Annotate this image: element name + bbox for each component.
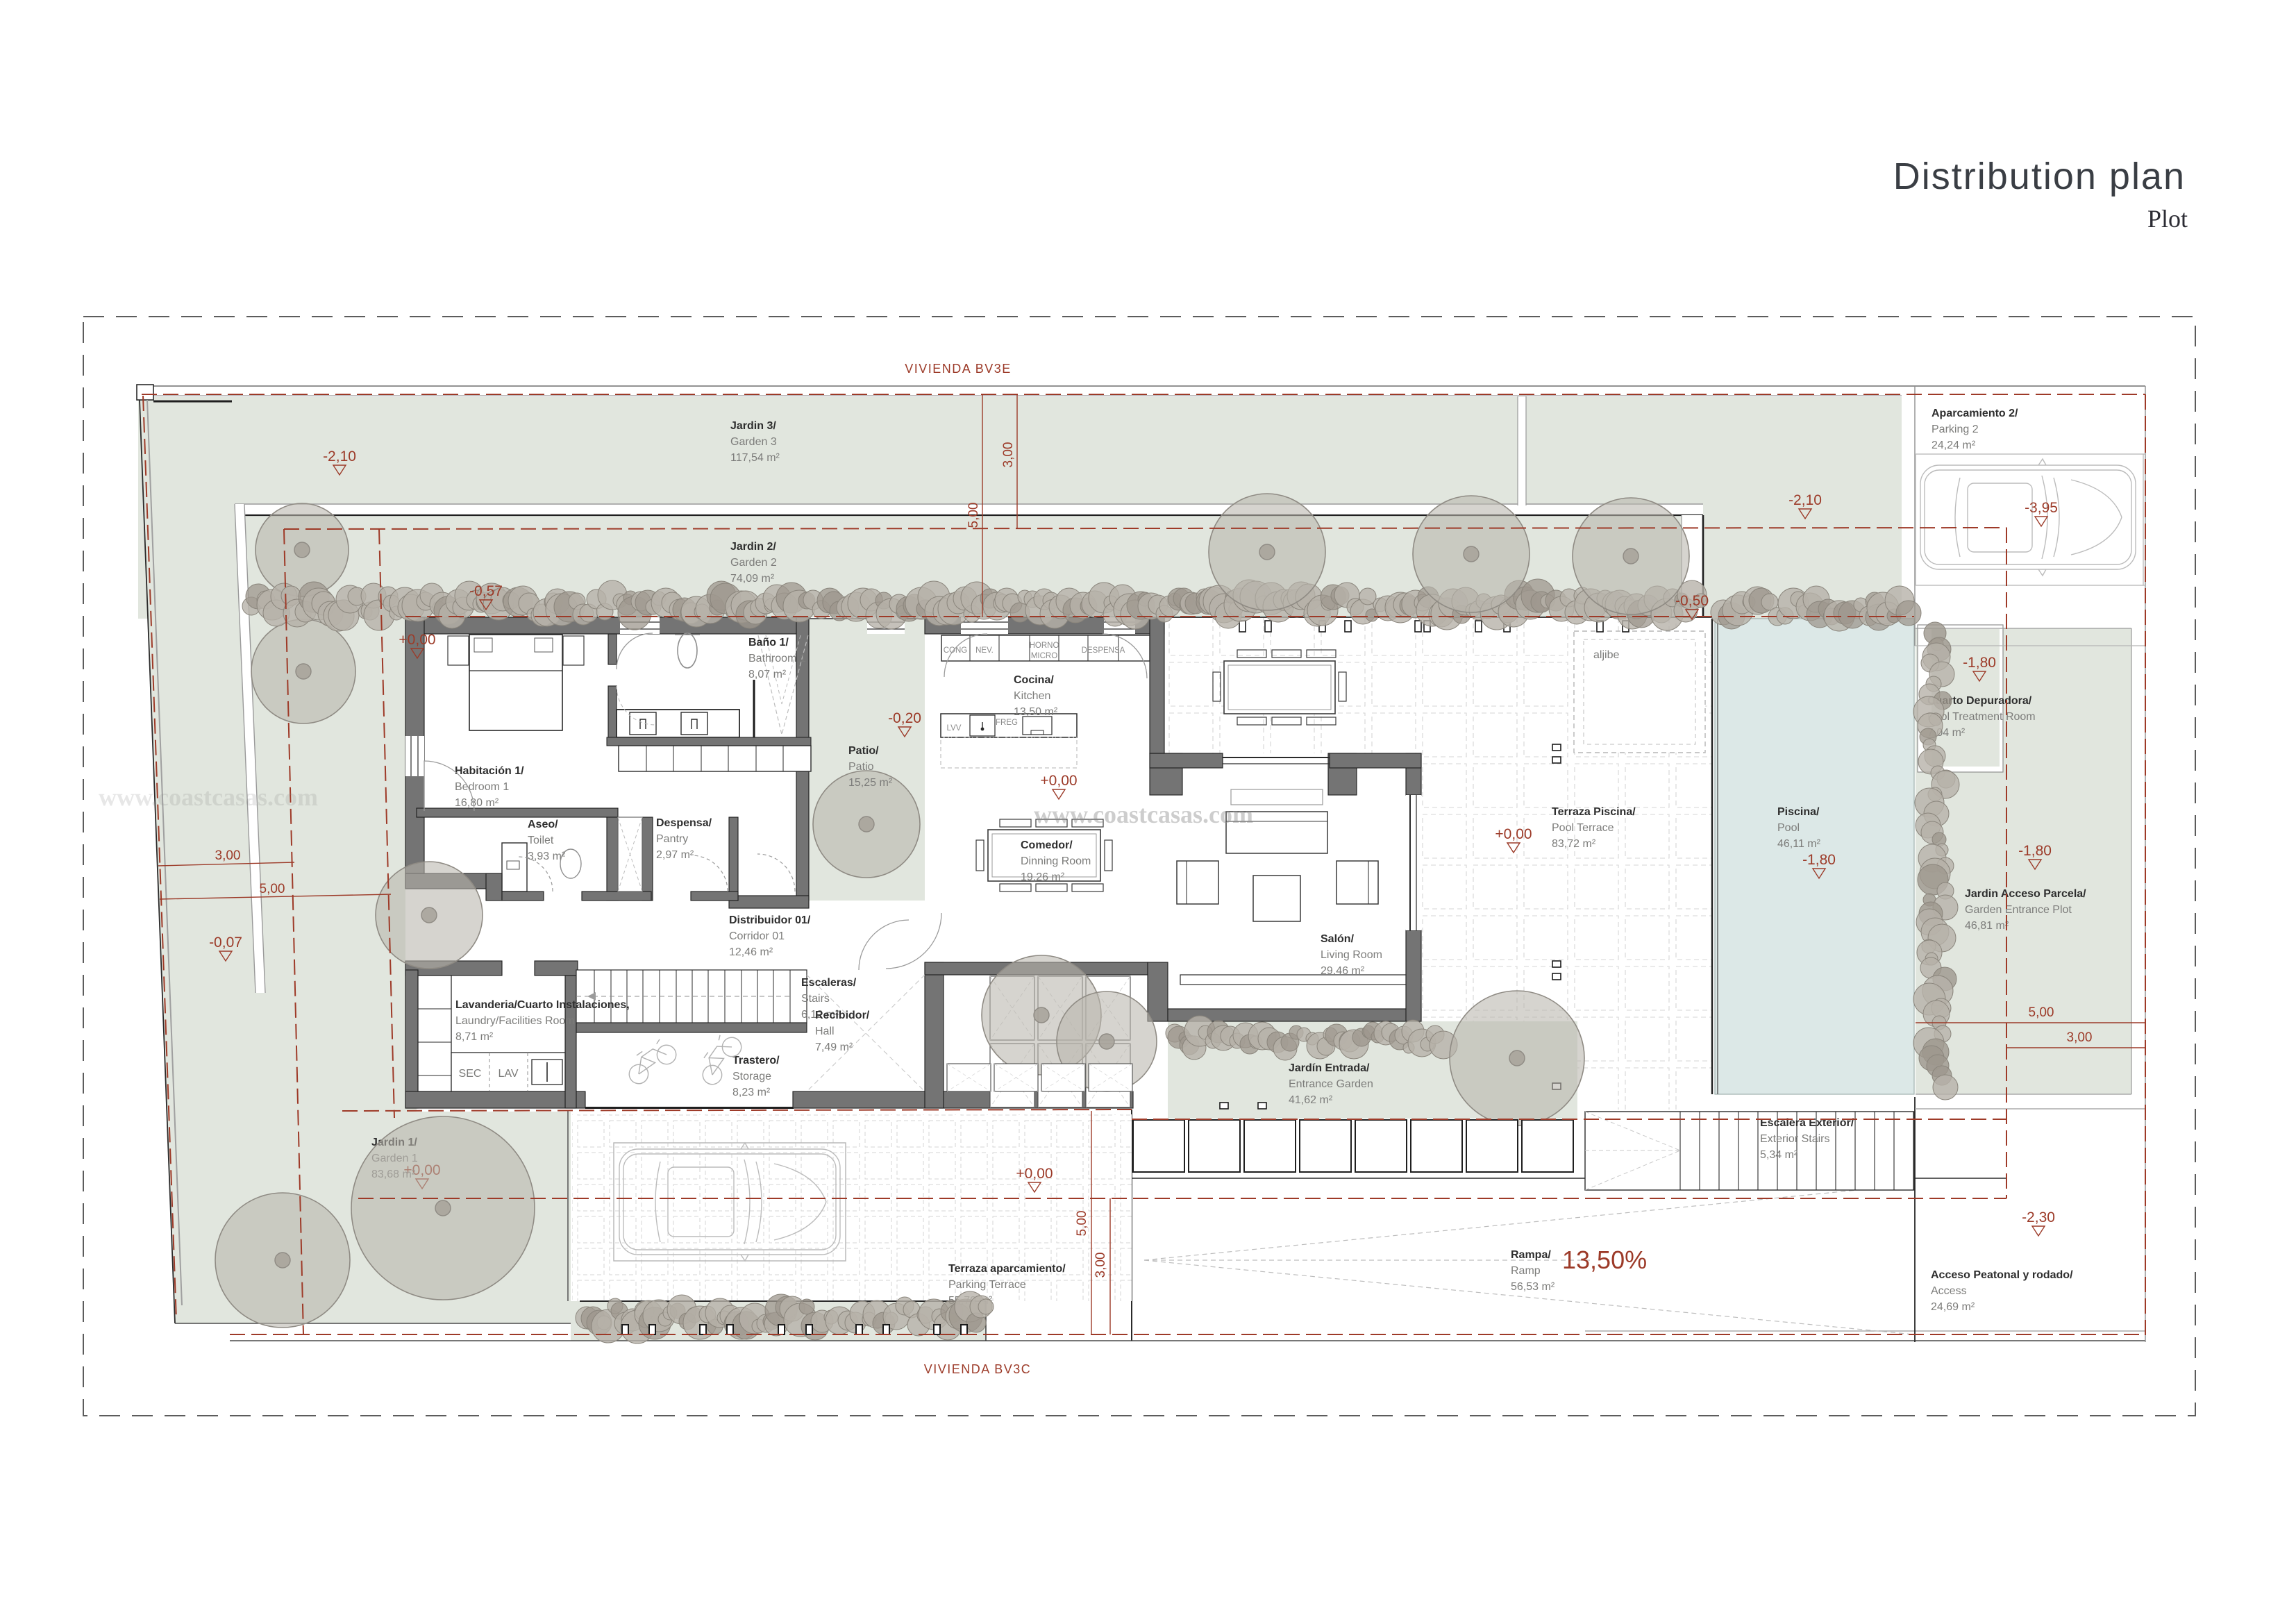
svg-text:Patio/: Patio/ — [848, 745, 879, 757]
svg-text:8,07 m²: 8,07 m² — [748, 669, 787, 680]
svg-text:-0,50: -0,50 — [1675, 593, 1709, 609]
svg-text:12,46 m²: 12,46 m² — [729, 946, 773, 958]
svg-text:Baño 1/: Baño 1/ — [748, 637, 789, 648]
svg-text:-0,07: -0,07 — [209, 935, 242, 951]
svg-text:46,11 m²: 46,11 m² — [1777, 838, 1821, 850]
svg-text:Pool: Pool — [1777, 822, 1800, 834]
svg-text:Lavanderia/Cuarto Instalacione: Lavanderia/Cuarto Instalaciones, — [455, 999, 630, 1011]
svg-text:56,53 m²: 56,53 m² — [1511, 1281, 1555, 1293]
svg-text:+0,00: +0,00 — [1495, 826, 1532, 842]
svg-text:5,00: 5,00 — [2029, 1005, 2054, 1020]
svg-text:www.coastcasas.com: www.coastcasas.com — [99, 783, 318, 811]
svg-text:Despensa/: Despensa/ — [656, 817, 712, 829]
svg-text:8,23 m²: 8,23 m² — [732, 1087, 771, 1098]
svg-text:Garden 3: Garden 3 — [730, 436, 777, 448]
svg-text:www.coastcasas.com: www.coastcasas.com — [1034, 801, 1253, 828]
svg-text:3,00: 3,00 — [1001, 442, 1016, 468]
svg-text:-0,57: -0,57 — [469, 583, 503, 599]
svg-text:3,00: 3,00 — [215, 848, 241, 863]
svg-text:5,00: 5,00 — [966, 503, 981, 528]
svg-text:41,62 m²: 41,62 m² — [1289, 1094, 1333, 1106]
svg-text:Jardin 3/: Jardin 3/ — [730, 420, 776, 432]
svg-text:Entrance Garden: Entrance Garden — [1289, 1078, 1373, 1090]
svg-text:74,09 m²: 74,09 m² — [730, 573, 775, 585]
svg-text:Comedor/: Comedor/ — [1021, 839, 1073, 851]
svg-text:15,25 m²: 15,25 m² — [848, 777, 893, 789]
svg-text:DESPENSA: DESPENSA — [1082, 646, 1125, 655]
svg-text:Jardin 2/: Jardin 2/ — [730, 541, 776, 553]
svg-text:Patio: Patio — [848, 761, 874, 773]
svg-text:Dinning Room: Dinning Room — [1021, 855, 1091, 867]
svg-text:-2,10: -2,10 — [323, 449, 356, 464]
svg-text:Rampa/: Rampa/ — [1511, 1249, 1551, 1261]
svg-text:Bathroom 1: Bathroom 1 — [748, 653, 806, 664]
svg-text:Garden Entrance Plot: Garden Entrance Plot — [1965, 904, 2072, 916]
svg-text:5,00: 5,00 — [260, 882, 285, 896]
svg-text:Aparcamiento 2/: Aparcamiento 2/ — [1932, 408, 2018, 419]
svg-text:LAV: LAV — [498, 1068, 518, 1080]
svg-text:NEV.: NEV. — [975, 646, 994, 655]
svg-text:-0,20: -0,20 — [888, 710, 921, 726]
svg-text:Ramp: Ramp — [1511, 1265, 1541, 1277]
svg-text:Pool Terrace: Pool Terrace — [1552, 822, 1614, 834]
svg-text:MICRO: MICRO — [1031, 652, 1057, 660]
svg-text:aljibe: aljibe — [1593, 649, 1619, 661]
svg-text:16,80 m²: 16,80 m² — [455, 797, 499, 809]
svg-text:VIVIENDA BV3C: VIVIENDA BV3C — [924, 1362, 1032, 1376]
svg-text:Distribution plan: Distribution plan — [1893, 156, 2186, 197]
svg-text:Toilet: Toilet — [528, 835, 554, 846]
svg-text:Terraza aparcamiento/: Terraza aparcamiento/ — [948, 1263, 1066, 1275]
svg-text:Acceso Peatonal y rodado/: Acceso Peatonal y rodado/ — [1931, 1269, 2073, 1281]
svg-text:46,81 m²: 46,81 m² — [1965, 920, 2009, 932]
svg-text:Habitación 1/: Habitación 1/ — [455, 765, 524, 777]
svg-text:24,24 m²: 24,24 m² — [1932, 440, 1976, 451]
svg-text:Hall: Hall — [815, 1026, 835, 1037]
svg-text:3,00: 3,00 — [2067, 1030, 2093, 1045]
svg-text:Access: Access — [1931, 1285, 1967, 1297]
svg-text:8,71 m²: 8,71 m² — [455, 1031, 494, 1043]
svg-text:-1,80: -1,80 — [1802, 852, 1836, 868]
svg-text:-2,30: -2,30 — [2022, 1209, 2055, 1225]
svg-text:Pantry: Pantry — [656, 833, 688, 845]
svg-text:Recibidor/: Recibidor/ — [815, 1010, 870, 1021]
svg-text:Kitchen: Kitchen — [1014, 690, 1050, 702]
svg-text:-1,80: -1,80 — [2018, 843, 2052, 859]
svg-text:VIVIENDA BV3E: VIVIENDA BV3E — [905, 362, 1012, 376]
svg-text:Cocina/: Cocina/ — [1014, 674, 1054, 686]
svg-text:2,97 m²: 2,97 m² — [656, 849, 694, 861]
svg-text:Terraza Piscina/: Terraza Piscina/ — [1552, 806, 1636, 818]
svg-text:117,54 m²: 117,54 m² — [730, 452, 780, 464]
svg-text:-2,10: -2,10 — [1788, 492, 1822, 508]
svg-text:LVV: LVV — [947, 724, 962, 733]
svg-text:13,50 m²: 13,50 m² — [1014, 706, 1058, 718]
svg-text:Laundry/Facilities Room: Laundry/Facilities Room — [455, 1015, 575, 1027]
svg-text:SEC: SEC — [459, 1068, 482, 1080]
svg-text:13,50%: 13,50% — [1562, 1246, 1647, 1274]
svg-text:-3,95: -3,95 — [2025, 500, 2058, 516]
svg-text:+0,00: +0,00 — [1016, 1166, 1053, 1182]
svg-text:5,00: 5,00 — [1075, 1211, 1089, 1237]
svg-text:Storage: Storage — [732, 1071, 771, 1082]
svg-text:Aseo/: Aseo/ — [528, 819, 558, 830]
svg-text:Corridor 01: Corridor 01 — [729, 930, 785, 942]
svg-text:Salón/: Salón/ — [1321, 933, 1355, 945]
svg-text:Garden 2: Garden 2 — [730, 557, 777, 569]
svg-text:19,26 m²: 19,26 m² — [1021, 871, 1065, 883]
svg-text:FREG: FREG — [996, 719, 1018, 727]
svg-text:29,46 m²: 29,46 m² — [1321, 965, 1365, 977]
svg-text:83,72 m²: 83,72 m² — [1552, 838, 1596, 850]
svg-text:Piscina/: Piscina/ — [1777, 806, 1820, 818]
svg-text:7,49 m²: 7,49 m² — [815, 1041, 853, 1053]
svg-text:+0,00: +0,00 — [1040, 773, 1077, 789]
svg-text:Escaleras/: Escaleras/ — [801, 977, 857, 989]
svg-text:Exterior Stairs: Exterior Stairs — [1760, 1133, 1829, 1145]
svg-text:Bedroom 1: Bedroom 1 — [455, 781, 509, 793]
svg-text:Parking 2: Parking 2 — [1932, 424, 1979, 435]
svg-text:-1,80: -1,80 — [1963, 655, 1996, 671]
svg-text:Jardín Entrada/: Jardín Entrada/ — [1289, 1062, 1370, 1074]
svg-text:Trastero/: Trastero/ — [732, 1055, 780, 1066]
svg-text:HORNO: HORNO — [1030, 642, 1059, 650]
svg-text:Jardin Acceso Parcela/: Jardin Acceso Parcela/ — [1965, 888, 2086, 900]
svg-text:5,34 m²: 5,34 m² — [1760, 1149, 1798, 1161]
svg-text:Distribuidor 01/: Distribuidor 01/ — [729, 914, 811, 926]
svg-text:Stairs: Stairs — [801, 993, 830, 1005]
svg-text:3,00: 3,00 — [1093, 1253, 1108, 1278]
svg-text:Parking Terrace: Parking Terrace — [948, 1279, 1026, 1291]
svg-text:+0,00: +0,00 — [399, 632, 435, 648]
svg-text:Plot: Plot — [2147, 205, 2188, 233]
svg-text:24,69 m²: 24,69 m² — [1931, 1301, 1975, 1313]
svg-text:Living Room: Living Room — [1321, 949, 1382, 961]
